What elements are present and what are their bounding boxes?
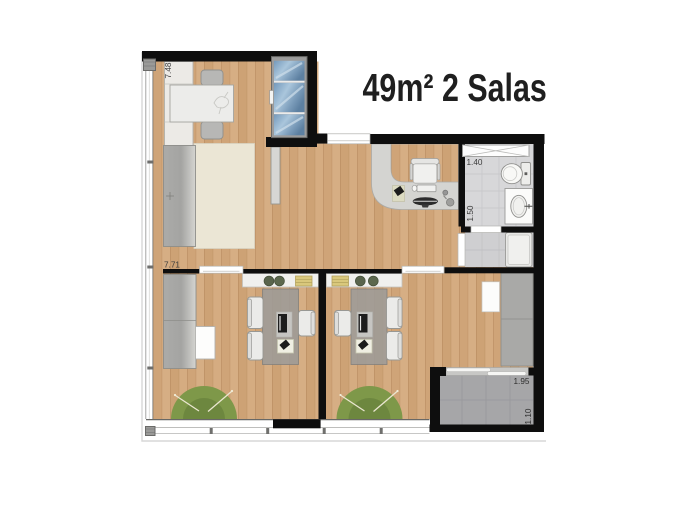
svg-text:1.10: 1.10 xyxy=(524,408,533,424)
svg-text:7.48: 7.48 xyxy=(164,62,173,78)
svg-text:49m² 2 Salas: 49m² 2 Salas xyxy=(363,66,547,109)
svg-text:1.50: 1.50 xyxy=(466,205,475,221)
svg-text:7.71: 7.71 xyxy=(164,261,180,270)
svg-text:1.40: 1.40 xyxy=(467,158,483,167)
svg-text:1.95: 1.95 xyxy=(514,377,530,386)
